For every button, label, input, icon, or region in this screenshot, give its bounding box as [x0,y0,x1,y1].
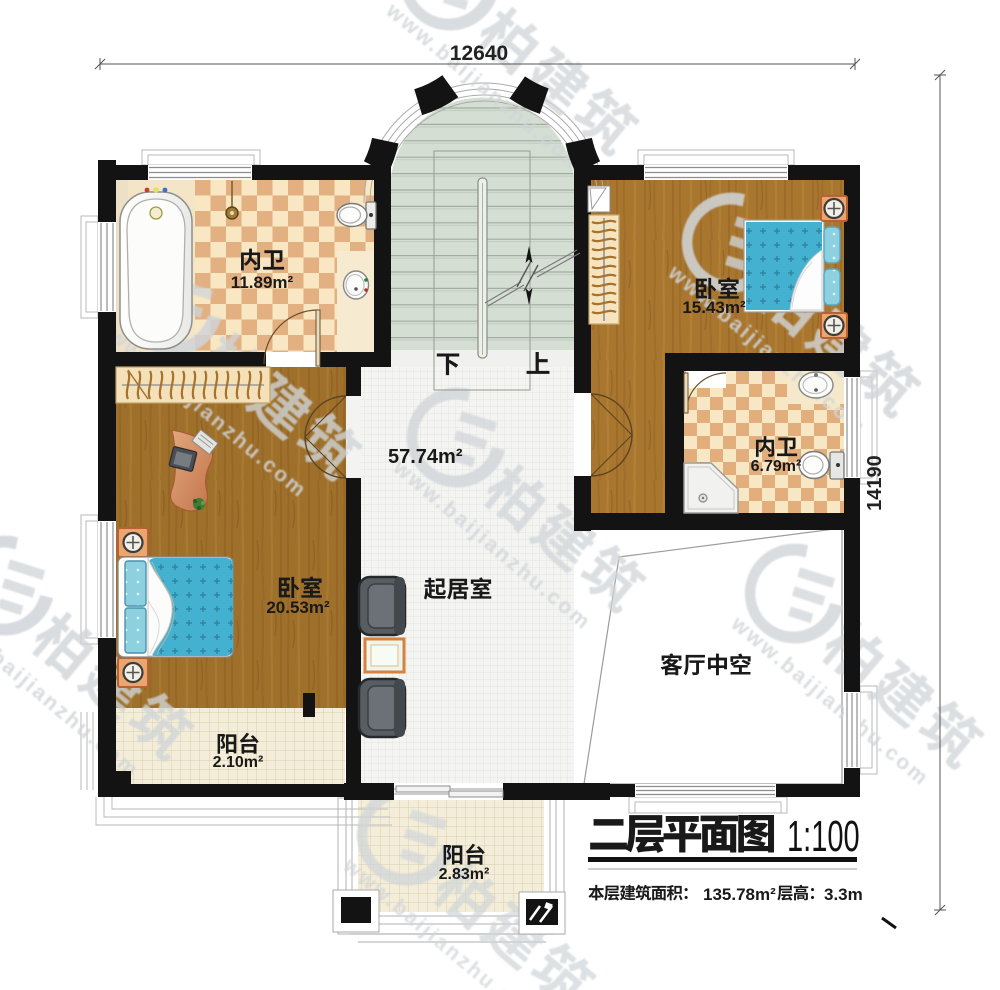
svg-text:2.83m²: 2.83m² [439,866,490,883]
svg-text:20.53m²: 20.53m² [266,598,330,617]
svg-text:1:100: 1:100 [787,811,860,861]
svg-text:135.78m²: 135.78m² [703,885,776,904]
svg-text:15.43m²: 15.43m² [682,298,746,317]
svg-text:11.89m²: 11.89m² [231,273,294,292]
svg-text:12640: 12640 [450,42,508,65]
svg-text:57.74m²: 57.74m² [388,446,463,468]
svg-text:3.3m: 3.3m [824,885,863,904]
svg-text:14190: 14190 [864,455,886,511]
svg-text:6.79m²: 6.79m² [751,458,802,475]
svg-text:2.10m²: 2.10m² [213,754,264,771]
